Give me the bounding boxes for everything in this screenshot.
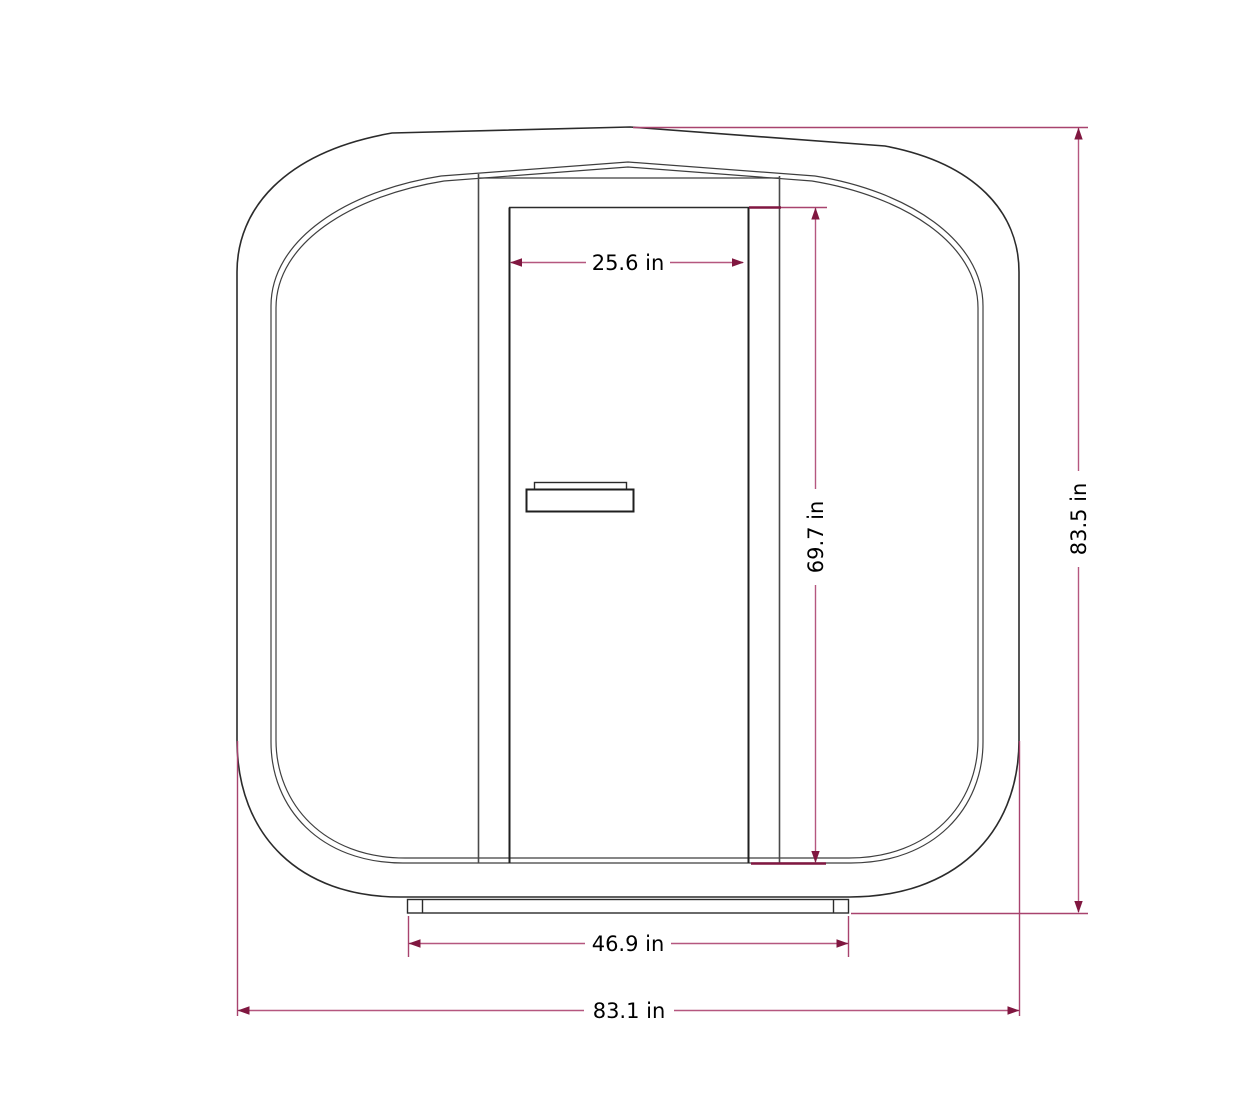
dim-door-height: 69.7 in [749, 208, 828, 864]
arrowhead-left-icon [510, 258, 522, 266]
door-handle-lip [535, 483, 627, 490]
pod-dimension-drawing: 25.6 in 69.7 in 83.5 in [0, 0, 1254, 1118]
dim-door-width: 25.6 in [510, 251, 744, 275]
door-width-label: 25.6 in [592, 251, 665, 275]
overall-height-label: 83.5 in [1067, 483, 1091, 556]
door-height-label: 69.7 in [804, 501, 828, 574]
arrowhead-right-icon [837, 939, 849, 947]
arrowhead-left-icon [409, 939, 421, 947]
arrowhead-up-icon [811, 208, 819, 220]
arrowhead-right-icon [1008, 1006, 1020, 1014]
dim-overall-width: 83.1 in [238, 741, 1020, 1023]
arrowhead-down-icon [1074, 901, 1082, 913]
base-plinth [408, 900, 849, 914]
door-handle-body [527, 490, 634, 512]
arrowhead-right-icon [732, 258, 744, 266]
arrowhead-down-icon [811, 851, 819, 863]
base-width-label: 46.9 in [592, 932, 665, 956]
dim-base-width: 46.9 in [409, 916, 849, 957]
diagram-canvas: 25.6 in 69.7 in 83.5 in [0, 0, 1254, 1118]
dim-overall-height: 83.5 in [633, 128, 1091, 914]
overall-width-label: 83.1 in [593, 999, 666, 1023]
arrowhead-up-icon [1074, 128, 1082, 140]
arrowhead-left-icon [238, 1006, 250, 1014]
